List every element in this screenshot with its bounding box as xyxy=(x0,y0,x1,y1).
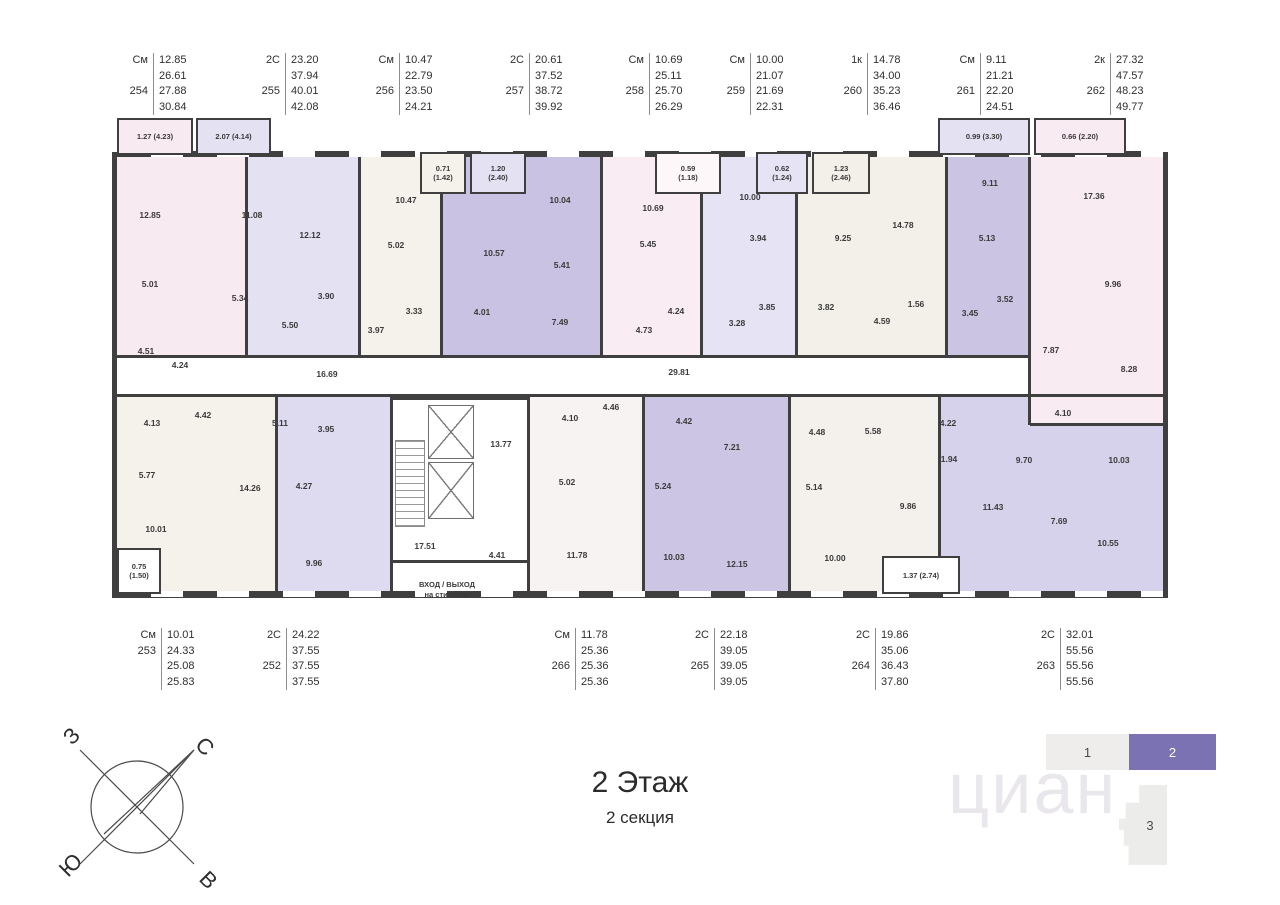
apartment-region-265[interactable] xyxy=(645,397,790,593)
unit-area-value: 24.21 xyxy=(400,100,433,116)
room-area-label: 4.42 xyxy=(676,416,693,426)
unit-info-265[interactable]: 2С26522.1839.0539.0539.05 xyxy=(669,628,748,690)
unit-area-value: 21.07 xyxy=(751,69,784,85)
unit-area-value: 25.83 xyxy=(162,675,195,691)
unit-area-value: 36.46 xyxy=(868,100,901,116)
unit-key-spacer xyxy=(240,100,285,116)
unit-area-value: 32.01 xyxy=(1061,628,1094,644)
room-area-label: 17.51 xyxy=(414,541,435,551)
unit-area-value: 37.94 xyxy=(286,69,319,85)
entrance-label: ВХОД / ВЫХОД на стилобат xyxy=(392,580,502,600)
unit-area-value: 24.22 xyxy=(287,628,320,644)
room-area-label: 4.46 xyxy=(603,402,620,412)
room-area-label: 9.11 xyxy=(982,178,998,188)
room-area-label: 1.94 xyxy=(941,454,958,464)
unit-area-value: 27.32 xyxy=(1111,53,1144,69)
unit-key-label: 265 xyxy=(669,659,714,675)
room-area-label: 9.70 xyxy=(1016,455,1033,465)
unit-key-label: См xyxy=(604,53,649,69)
unit-area-value: 25.36 xyxy=(576,675,609,691)
unit-key-spacer xyxy=(669,675,714,691)
unit-area-value: 37.55 xyxy=(287,659,320,675)
room-area-label: 14.78 xyxy=(892,220,913,230)
unit-area-value: 21.69 xyxy=(751,84,784,100)
unit-key-label: 262 xyxy=(1065,84,1110,100)
unit-key-label: 260 xyxy=(822,84,867,100)
unit-key-label: 2С xyxy=(1015,628,1060,644)
wall-segment xyxy=(945,157,948,355)
room-area-label: 5.14 xyxy=(806,482,823,492)
room-area-label: 3.33 xyxy=(406,306,423,316)
apartment-region-corridor xyxy=(117,358,1028,394)
unit-key-label: 2к xyxy=(1065,53,1110,69)
room-area-label: 3.97 xyxy=(368,325,385,335)
unit-key-label: 1к xyxy=(822,53,867,69)
room-area-label: 4.01 xyxy=(474,307,491,317)
unit-area-value: 37.55 xyxy=(287,675,320,691)
balcony: 0.75 (1.50) xyxy=(117,548,161,594)
wall-segment xyxy=(600,157,603,355)
balcony: 1.20 (2.40) xyxy=(470,152,526,194)
room-area-label: 5.11 xyxy=(272,418,288,428)
unit-area-value: 39.05 xyxy=(715,644,748,660)
room-area-label: 10.01 xyxy=(145,524,166,534)
unit-key-spacer xyxy=(240,69,285,85)
unit-key-spacer xyxy=(108,100,153,116)
unit-key-label: 256 xyxy=(354,84,399,100)
entrance-line2: на стилобат xyxy=(392,590,502,600)
unit-info-257[interactable]: 2С25720.6137.5238.7239.92 xyxy=(484,53,563,115)
unit-area-value: 26.29 xyxy=(650,100,683,116)
unit-info-255[interactable]: 2С25523.2037.9440.0142.08 xyxy=(240,53,319,115)
unit-key-spacer xyxy=(604,100,649,116)
room-area-label: 9.96 xyxy=(306,558,323,568)
room-area-label: 3.90 xyxy=(318,291,335,301)
unit-key-spacer xyxy=(484,100,529,116)
unit-key-spacer xyxy=(830,675,875,691)
unit-area-value: 22.79 xyxy=(400,69,433,85)
unit-area-value: 35.23 xyxy=(868,84,901,100)
room-area-label: 3.94 xyxy=(750,233,767,243)
unit-key-label: 2С xyxy=(484,53,529,69)
room-area-label: 17.36 xyxy=(1083,191,1104,201)
room-area-label: 10.00 xyxy=(739,192,760,202)
unit-key-spacer xyxy=(822,69,867,85)
room-area-label: 10.69 xyxy=(642,203,663,213)
room-area-label: 3.28 xyxy=(729,318,746,328)
unit-key-label: См xyxy=(705,53,750,69)
room-area-label: 4.24 xyxy=(668,306,685,316)
unit-key-label: См xyxy=(108,53,153,69)
room-area-label: 4.41 xyxy=(489,550,506,560)
wall-segment xyxy=(245,157,248,355)
unit-info-254[interactable]: См25412.8526.6127.8830.84 xyxy=(108,53,187,115)
room-area-label: 5.58 xyxy=(865,426,882,436)
unit-area-value: 12.85 xyxy=(154,53,187,69)
unit-key-spacer xyxy=(830,644,875,660)
unit-area-value: 22.18 xyxy=(715,628,748,644)
unit-area-value: 25.36 xyxy=(576,659,609,675)
wall-segment xyxy=(642,397,645,593)
unit-info-262[interactable]: 2к26227.3247.5748.2349.77 xyxy=(1065,53,1144,115)
unit-area-value: 40.01 xyxy=(286,84,319,100)
section-1-label: 1 xyxy=(1084,745,1091,760)
unit-area-value: 20.61 xyxy=(530,53,563,69)
unit-area-value: 21.21 xyxy=(981,69,1014,85)
floorplan-page: { "title": {"main": "2 Этаж", "sub": "2 … xyxy=(0,0,1280,905)
unit-info-253[interactable]: См25310.0124.3325.0825.83 xyxy=(116,628,195,690)
unit-key-label: 252 xyxy=(241,659,286,675)
unit-key-spacer xyxy=(108,69,153,85)
section-1-button[interactable]: 1 xyxy=(1046,734,1129,770)
apartment-region-266[interactable] xyxy=(530,397,645,593)
unit-info-256[interactable]: См25610.4722.7923.5024.21 xyxy=(354,53,433,115)
unit-area-value: 37.55 xyxy=(287,644,320,660)
unit-key-spacer xyxy=(116,675,161,691)
room-area-label: 4.27 xyxy=(296,481,313,491)
room-area-label: 5.34 xyxy=(232,293,249,303)
balcony: 1.23 (2.46) xyxy=(812,152,870,194)
unit-area-value: 10.00 xyxy=(751,53,784,69)
unit-area-value: 24.33 xyxy=(162,644,195,660)
room-area-label: 5.02 xyxy=(388,240,405,250)
room-area-label: 16.69 xyxy=(316,369,337,379)
room-area-label: 4.10 xyxy=(1055,408,1072,418)
room-area-label: 10.04 xyxy=(549,195,570,205)
room-area-label: 12.85 xyxy=(139,210,160,220)
unit-key-spacer xyxy=(1015,675,1060,691)
unit-info-258[interactable]: См25810.6925.1125.7026.29 xyxy=(604,53,683,115)
compass-north-label: С xyxy=(190,732,219,761)
unit-key-spacer xyxy=(241,644,286,660)
unit-area-value: 23.50 xyxy=(400,84,433,100)
unit-key-spacer xyxy=(354,69,399,85)
room-area-label: 7.21 xyxy=(724,442,741,452)
unit-area-value: 9.11 xyxy=(981,53,1014,69)
room-area-label: 9.96 xyxy=(1105,279,1122,289)
unit-key-spacer xyxy=(1015,644,1060,660)
unit-info-252[interactable]: 2С25224.2237.5537.5537.55 xyxy=(241,628,320,690)
unit-area-value: 27.88 xyxy=(154,84,187,100)
unit-info-261[interactable]: См2619.1121.2122.2024.51 xyxy=(935,53,1014,115)
apartment-region-255[interactable] xyxy=(245,157,358,355)
unit-key-spacer xyxy=(530,644,575,660)
elevator-shaft-icon xyxy=(428,405,474,459)
balcony: 0.99 (3.30) xyxy=(938,118,1030,155)
balcony: 0.66 (2.20) xyxy=(1034,118,1126,155)
unit-area-value: 26.61 xyxy=(154,69,187,85)
room-area-label: 11.43 xyxy=(983,502,1004,512)
room-area-label: 10.47 xyxy=(395,195,416,205)
unit-key-label: 266 xyxy=(530,659,575,675)
unit-area-value: 37.52 xyxy=(530,69,563,85)
unit-key-spacer xyxy=(484,69,529,85)
room-area-label: 10.00 xyxy=(824,553,845,563)
room-area-label: 4.22 xyxy=(940,418,957,428)
room-area-label: 10.03 xyxy=(663,552,684,562)
room-area-label: 9.25 xyxy=(835,233,852,243)
unit-area-value: 47.57 xyxy=(1111,69,1144,85)
unit-key-label: 263 xyxy=(1015,659,1060,675)
unit-key-label: 2С xyxy=(240,53,285,69)
unit-key-spacer xyxy=(116,659,161,675)
unit-info-264[interactable]: 2С26419.8635.0636.4337.80 xyxy=(830,628,909,690)
unit-area-value: 55.56 xyxy=(1061,675,1094,691)
unit-key-spacer xyxy=(354,100,399,116)
room-area-label: 5.02 xyxy=(559,477,576,487)
room-area-label: 12.12 xyxy=(299,230,320,240)
unit-key-spacer xyxy=(241,675,286,691)
unit-key-spacer xyxy=(669,644,714,660)
compass-east-label: В xyxy=(194,866,222,894)
unit-key-label: 257 xyxy=(484,84,529,100)
room-area-label: 4.24 xyxy=(172,360,189,370)
unit-area-value: 30.84 xyxy=(154,100,187,116)
unit-info-260[interactable]: 1к26014.7834.0035.2336.46 xyxy=(822,53,901,115)
section-2-button[interactable]: 2 xyxy=(1129,734,1216,770)
balcony: 1.27 (4.23) xyxy=(117,118,193,155)
unit-key-label: 264 xyxy=(830,659,875,675)
room-area-label: 4.48 xyxy=(809,427,826,437)
room-area-label: 5.13 xyxy=(979,233,996,243)
wall-segment xyxy=(1028,157,1031,425)
unit-key-label: 258 xyxy=(604,84,649,100)
room-area-label: 5.45 xyxy=(640,239,657,249)
unit-key-spacer xyxy=(705,100,750,116)
unit-area-value: 24.51 xyxy=(981,100,1014,116)
room-area-label: 4.42 xyxy=(195,410,212,420)
tower-3-label: 3 xyxy=(1146,818,1153,833)
unit-key-label: См xyxy=(935,53,980,69)
balcony: 0.62 (1.24) xyxy=(756,152,808,194)
room-area-label: 3.82 xyxy=(818,302,835,312)
bottom-facade-windows xyxy=(117,591,1163,597)
unit-area-value: 23.20 xyxy=(286,53,319,69)
unit-area-value: 48.23 xyxy=(1111,84,1144,100)
unit-key-label: См xyxy=(354,53,399,69)
unit-area-value: 38.72 xyxy=(530,84,563,100)
unit-area-value: 10.69 xyxy=(650,53,683,69)
room-area-label: 11.08 xyxy=(242,210,263,220)
room-area-label: 4.10 xyxy=(562,413,579,423)
unit-area-value: 25.11 xyxy=(650,69,683,85)
unit-key-label: См xyxy=(530,628,575,644)
unit-key-label: 259 xyxy=(705,84,750,100)
unit-key-spacer xyxy=(530,675,575,691)
room-area-label: 4.13 xyxy=(144,418,161,428)
unit-key-spacer xyxy=(935,69,980,85)
unit-area-value: 49.77 xyxy=(1111,100,1144,116)
balcony: 1.37 (2.74) xyxy=(882,556,960,594)
room-area-label: 10.03 xyxy=(1108,455,1129,465)
unit-area-value: 10.01 xyxy=(162,628,195,644)
unit-area-value: 25.36 xyxy=(576,644,609,660)
unit-key-spacer xyxy=(604,69,649,85)
compass-south-label: Ю xyxy=(54,848,87,881)
unit-key-spacer xyxy=(1065,100,1110,116)
unit-key-label: 253 xyxy=(116,644,161,660)
wall-segment xyxy=(358,157,361,355)
unit-area-value: 39.05 xyxy=(715,675,748,691)
room-area-label: 3.45 xyxy=(962,308,979,318)
room-area-label: 4.51 xyxy=(138,346,155,356)
unit-area-value: 22.20 xyxy=(981,84,1014,100)
compass-west-label: З xyxy=(58,722,85,749)
room-area-label: 3.85 xyxy=(759,302,776,312)
section-2-label: 2 xyxy=(1169,745,1176,760)
unit-area-value: 14.78 xyxy=(868,53,901,69)
unit-info-263[interactable]: 2С26332.0155.5655.5655.56 xyxy=(1015,628,1094,690)
room-area-label: 10.57 xyxy=(483,248,504,258)
room-area-label: 3.52 xyxy=(997,294,1014,304)
room-area-label: 8.28 xyxy=(1121,364,1138,374)
unit-area-value: 37.80 xyxy=(876,675,909,691)
unit-area-value: 42.08 xyxy=(286,100,319,116)
unit-key-spacer xyxy=(935,100,980,116)
unit-key-label: 2С xyxy=(669,628,714,644)
apartment-region-254[interactable] xyxy=(117,157,245,355)
unit-key-label: 2С xyxy=(830,628,875,644)
unit-area-value: 55.56 xyxy=(1061,644,1094,660)
room-area-label: 13.77 xyxy=(490,439,511,449)
unit-area-value: 36.43 xyxy=(876,659,909,675)
unit-key-spacer xyxy=(705,69,750,85)
unit-area-value: 22.31 xyxy=(751,100,784,116)
unit-area-value: 39.05 xyxy=(715,659,748,675)
wall-segment xyxy=(1030,423,1163,426)
unit-area-value: 35.06 xyxy=(876,644,909,660)
room-area-label: 1.56 xyxy=(908,299,925,309)
unit-key-label: 255 xyxy=(240,84,285,100)
room-area-label: 11.78 xyxy=(567,550,588,560)
room-area-label: 9.86 xyxy=(900,501,917,511)
room-area-label: 5.50 xyxy=(282,320,299,330)
room-area-label: 7.49 xyxy=(552,317,569,327)
room-area-label: 5.24 xyxy=(655,481,672,491)
balcony: 0.59 (1.18) xyxy=(655,152,721,194)
wall-segment xyxy=(117,355,1028,358)
room-area-label: 3.95 xyxy=(318,424,335,434)
unit-key-label: 254 xyxy=(108,84,153,100)
unit-key-label: 261 xyxy=(935,84,980,100)
room-area-label: 10.55 xyxy=(1097,538,1118,548)
unit-area-value: 55.56 xyxy=(1061,659,1094,675)
room-area-label: 7.87 xyxy=(1043,345,1060,355)
unit-key-label: 2С xyxy=(241,628,286,644)
room-area-label: 5.01 xyxy=(142,279,159,289)
room-area-label: 5.41 xyxy=(554,260,571,270)
room-area-label: 5.77 xyxy=(139,470,156,480)
room-area-label: 14.26 xyxy=(239,483,260,493)
unit-key-spacer xyxy=(822,100,867,116)
staircase-icon xyxy=(395,440,425,527)
balcony: 0.71 (1.42) xyxy=(420,152,466,194)
unit-area-value: 34.00 xyxy=(868,69,901,85)
unit-key-spacer xyxy=(1065,69,1110,85)
room-area-label: 4.73 xyxy=(636,325,653,335)
wall-segment xyxy=(117,394,1163,397)
room-area-label: 29.81 xyxy=(668,367,689,377)
wall-segment xyxy=(788,397,791,593)
unit-area-value: 19.86 xyxy=(876,628,909,644)
unit-key-label: См xyxy=(116,628,161,644)
unit-area-value: 10.47 xyxy=(400,53,433,69)
elevator-shaft-icon xyxy=(428,462,474,519)
unit-area-value: 11.78 xyxy=(576,628,609,644)
apartment-region-263[interactable] xyxy=(940,397,1163,593)
unit-area-value: 25.70 xyxy=(650,84,683,100)
unit-area-value: 39.92 xyxy=(530,100,563,116)
entrance-line1: ВХОД / ВЫХОД xyxy=(392,580,502,590)
room-area-label: 12.15 xyxy=(726,559,747,569)
room-area-label: 7.69 xyxy=(1051,516,1068,526)
unit-info-266[interactable]: См26611.7825.3625.3625.36 xyxy=(530,628,609,690)
balcony: 2.07 (4.14) xyxy=(196,118,271,155)
unit-info-259[interactable]: См25910.0021.0721.6922.31 xyxy=(705,53,784,115)
unit-area-value: 25.08 xyxy=(162,659,195,675)
room-area-label: 4.59 xyxy=(874,316,891,326)
